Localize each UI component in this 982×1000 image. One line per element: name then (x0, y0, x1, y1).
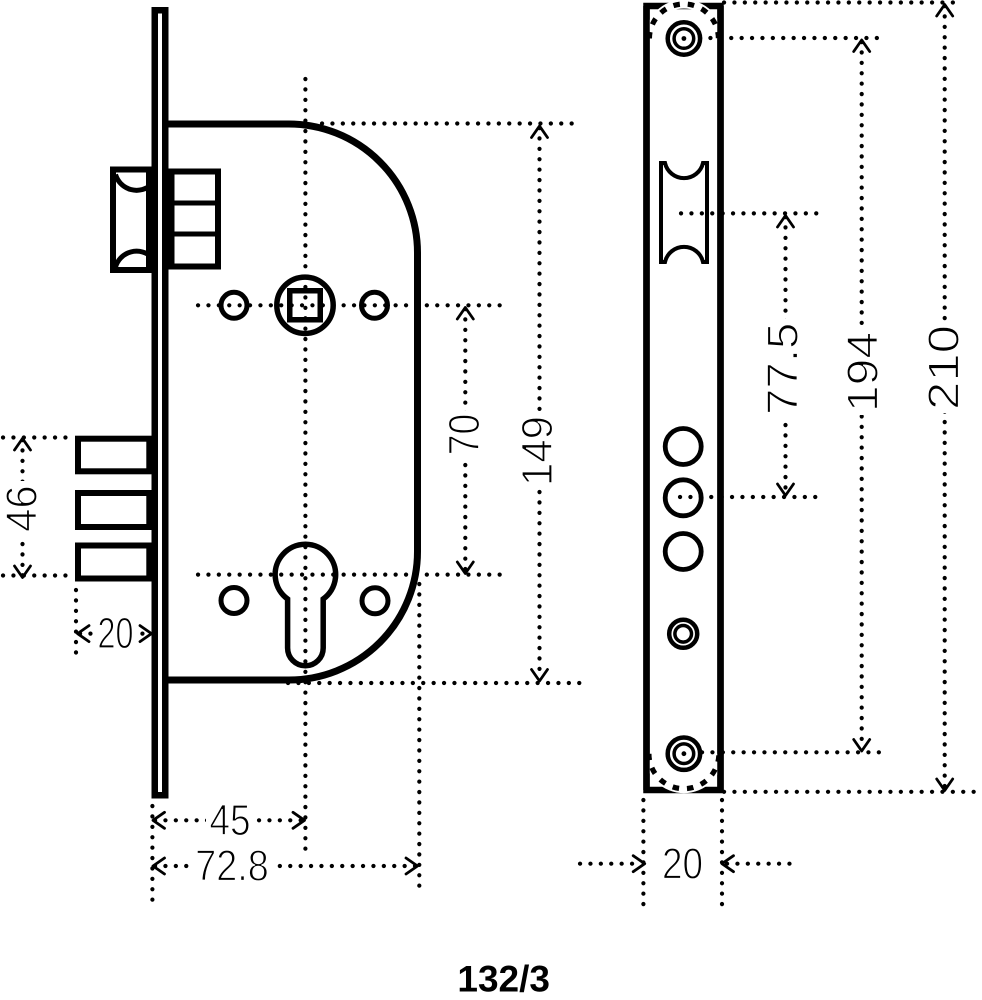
svg-text:77.5: 77.5 (759, 323, 808, 416)
svg-text:72.8: 72.8 (195, 842, 269, 891)
svg-text:149: 149 (513, 416, 562, 486)
svg-text:20: 20 (98, 609, 134, 658)
svg-text:46: 46 (0, 485, 46, 531)
svg-text:70: 70 (440, 414, 489, 456)
svg-text:20: 20 (662, 840, 703, 889)
svg-text:45: 45 (210, 796, 251, 845)
svg-text:194: 194 (839, 332, 888, 412)
svg-text:132/3: 132/3 (457, 959, 550, 1000)
svg-text:210: 210 (920, 325, 969, 410)
